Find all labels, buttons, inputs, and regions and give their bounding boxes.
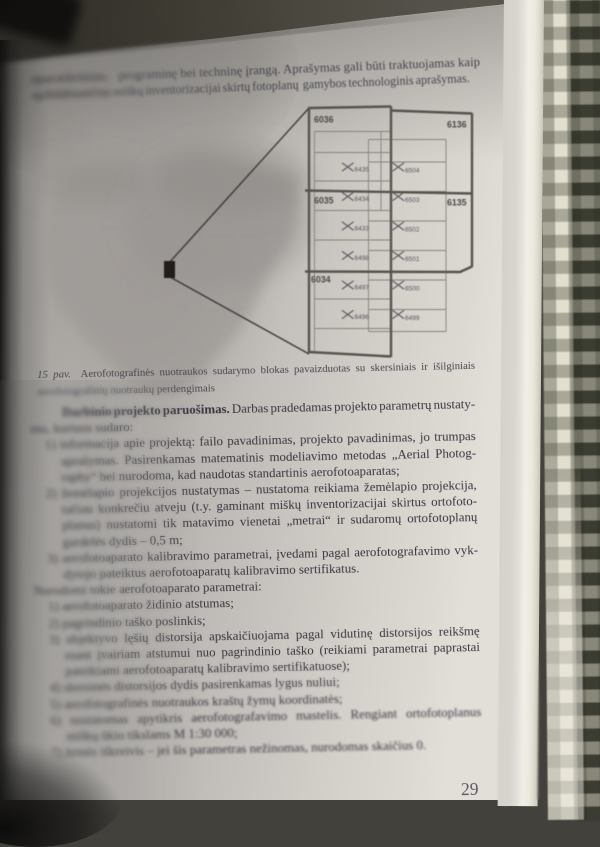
svg-text:6035: 6035 [314,196,334,206]
svg-text:6434: 6434 [355,196,370,203]
svg-text:6136: 6136 [447,120,467,130]
svg-text:6498: 6498 [355,255,370,262]
svg-text:6500: 6500 [405,286,420,293]
svg-text:6501: 6501 [405,256,420,263]
svg-text:6036: 6036 [314,115,334,125]
svg-text:6499: 6499 [405,315,420,322]
svg-text:6435: 6435 [355,167,370,174]
svg-text:6135: 6135 [447,198,467,208]
svg-text:6496: 6496 [355,314,370,321]
svg-text:6497: 6497 [355,285,370,292]
svg-text:6034: 6034 [311,275,331,285]
svg-text:6504: 6504 [405,168,420,175]
svg-text:6433: 6433 [355,226,370,233]
svg-text:6503: 6503 [405,197,420,204]
svg-text:6502: 6502 [405,227,420,234]
